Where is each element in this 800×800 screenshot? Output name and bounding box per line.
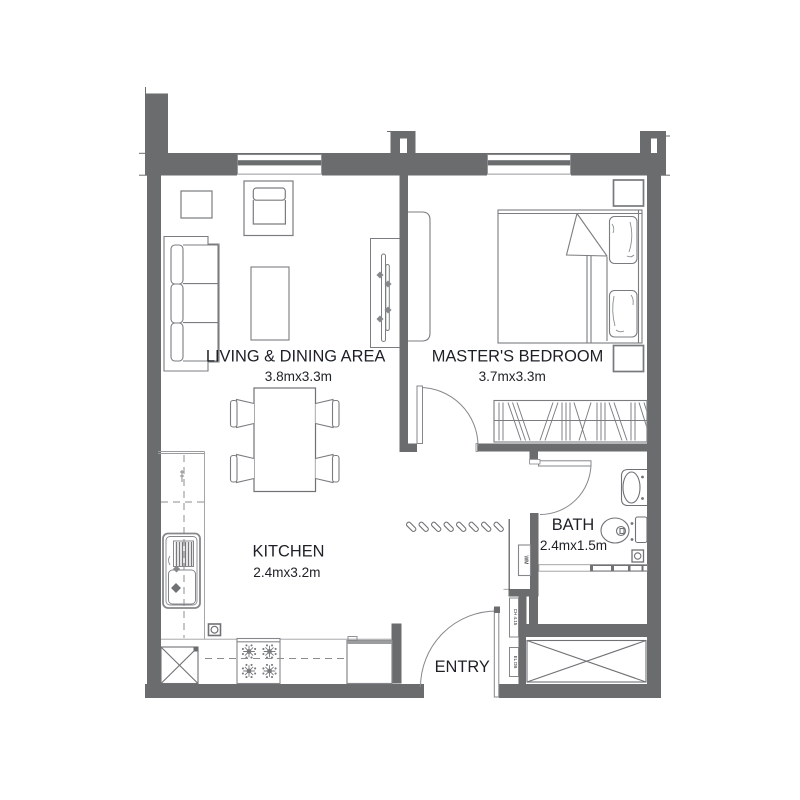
svg-text:BATH: BATH	[552, 516, 595, 534]
svg-text:ENTRY: ENTRY	[435, 658, 490, 676]
svg-text:LIVING & DINING AREA: LIVING & DINING AREA	[206, 348, 385, 366]
svg-text:EL DB: EL DB	[513, 656, 518, 669]
svg-text:3.7mx3.3m: 3.7mx3.3m	[479, 369, 546, 384]
svg-text:KITCHEN: KITCHEN	[253, 543, 325, 561]
svg-text:2.4mx3.2m: 2.4mx3.2m	[253, 565, 320, 580]
svg-text:2.4mx1.5m: 2.4mx1.5m	[540, 538, 607, 553]
svg-text:CH 4.15: CH 4.15	[513, 609, 518, 626]
svg-text:3.8mx3.3m: 3.8mx3.3m	[265, 369, 332, 384]
svg-text:MASTER'S BEDROOM: MASTER'S BEDROOM	[432, 348, 604, 366]
svg-text:WM: WM	[523, 556, 529, 565]
